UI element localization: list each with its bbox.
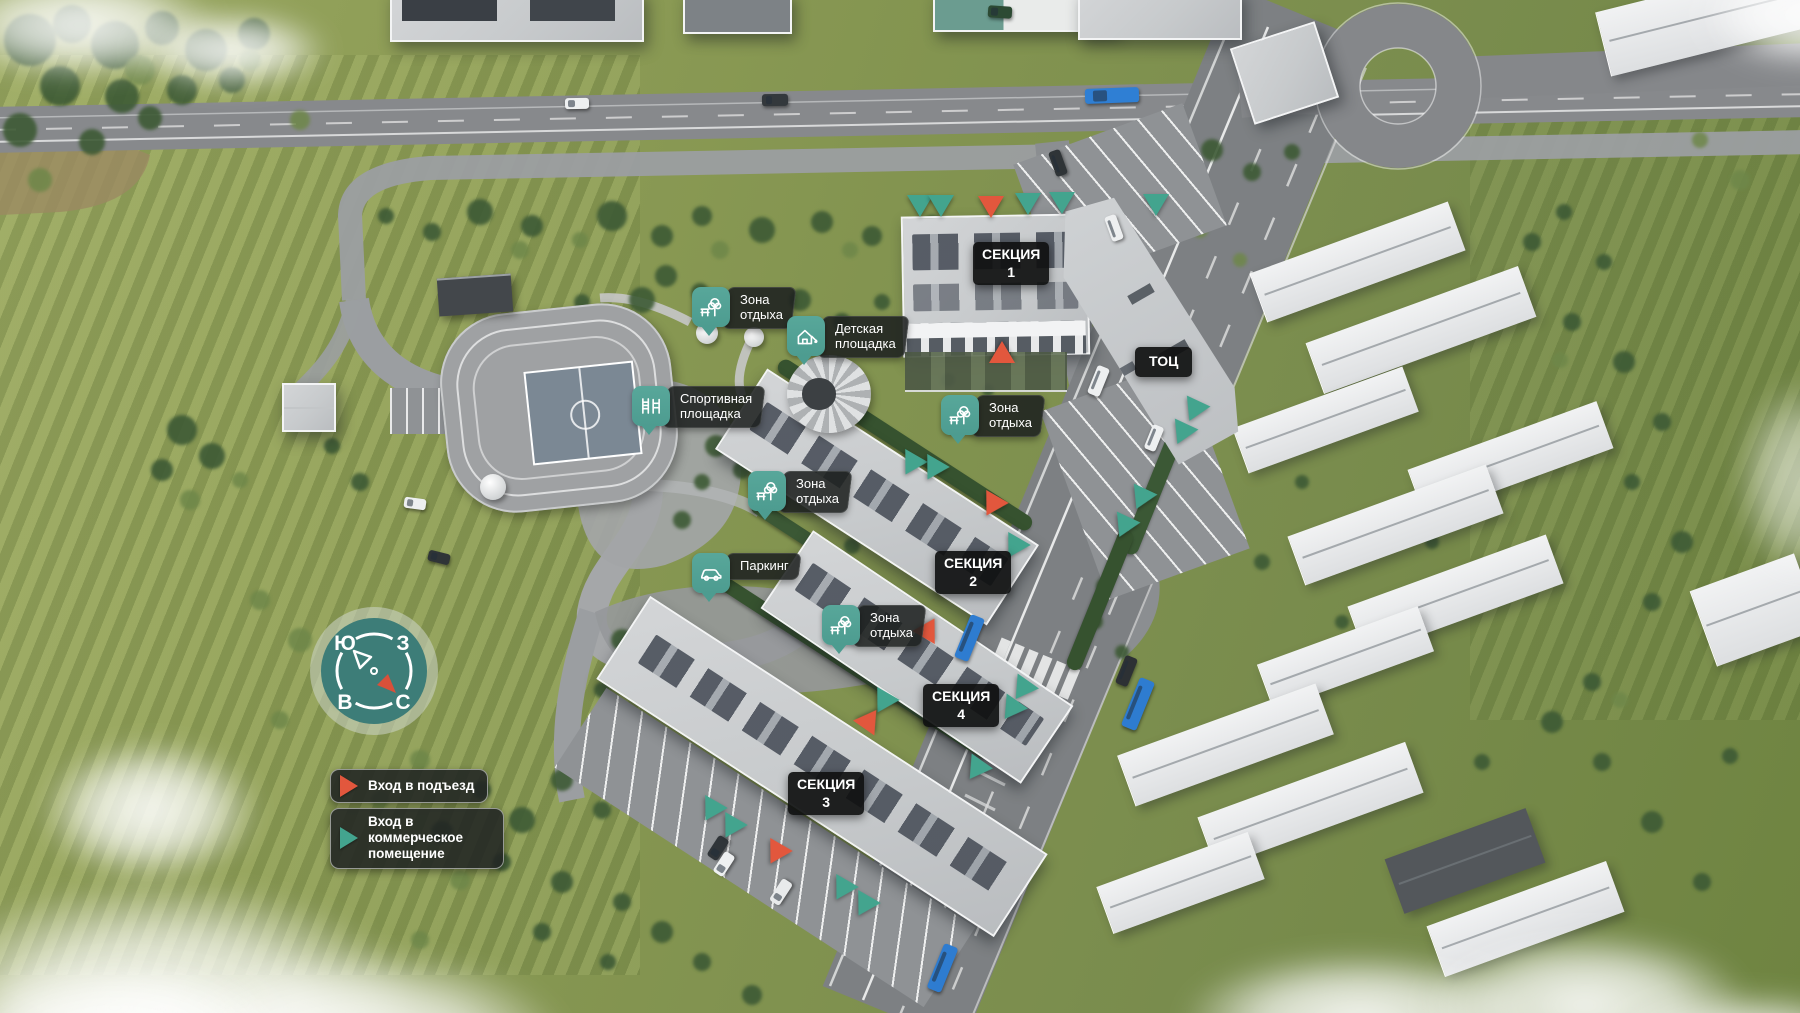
label-toc[interactable]: ТОЦ bbox=[1135, 347, 1192, 377]
entrance-triangle-icon bbox=[340, 775, 358, 797]
amenity-label-sports-ground[interactable]: Спортивнаяплощадка bbox=[632, 386, 763, 428]
amenity-label-rest-area-1[interactable]: Зонаотдыха bbox=[692, 287, 794, 329]
bus bbox=[1085, 87, 1139, 104]
label-section-3[interactable]: СЕКЦИЯ3 bbox=[788, 772, 864, 815]
entrance-marker[interactable] bbox=[989, 341, 1015, 363]
compass-rose: Ю З В С bbox=[308, 605, 440, 737]
car bbox=[988, 5, 1013, 19]
sports-ground-icon bbox=[632, 386, 670, 426]
compass-north-label: С bbox=[395, 691, 410, 714]
amenity-label-text: Зонаотдыха bbox=[855, 605, 924, 647]
commercial-entrance-marker[interactable] bbox=[1015, 193, 1041, 215]
compass-south-label: Ю bbox=[334, 632, 356, 655]
parking-icon bbox=[692, 553, 730, 593]
terrace-gardens bbox=[905, 352, 1067, 392]
car bbox=[762, 94, 788, 106]
dome-pavilion bbox=[480, 474, 506, 500]
rest-area-icon bbox=[748, 471, 786, 511]
building-offsite bbox=[390, 0, 644, 42]
commercial-entrance-marker[interactable] bbox=[928, 195, 954, 217]
compass-west-label: З bbox=[396, 632, 409, 655]
amenity-label-parking[interactable]: Паркинг bbox=[692, 553, 800, 593]
compass-east-label: В bbox=[337, 691, 352, 714]
commercial-triangle-icon bbox=[340, 827, 358, 849]
amenity-label-text: Зонаотдыха bbox=[725, 287, 794, 329]
basketball-court bbox=[523, 361, 642, 466]
legend-entrance: Вход в подъезд bbox=[330, 769, 488, 803]
rest-area-icon bbox=[692, 287, 730, 327]
small-house bbox=[282, 383, 336, 432]
amenity-label-text: Детскаяплощадка bbox=[820, 316, 907, 358]
rest-area-icon bbox=[822, 605, 860, 645]
amenity-label-playground[interactable]: Детскаяплощадка bbox=[787, 316, 907, 358]
amenity-label-rest-area-3[interactable]: Зонаотдыха bbox=[748, 471, 850, 513]
building-offsite bbox=[1078, 0, 1242, 40]
dome-pavilion bbox=[744, 327, 764, 347]
amenity-label-text: Спортивнаяплощадка bbox=[665, 386, 763, 428]
amenity-label-text: Зонаотдыха bbox=[974, 395, 1043, 437]
commercial-entrance-marker[interactable] bbox=[1143, 194, 1169, 216]
shed-building bbox=[437, 273, 513, 316]
amenity-label-rest-area-4[interactable]: Зонаотдыха bbox=[822, 605, 924, 647]
label-section-1[interactable]: СЕКЦИЯ1 bbox=[973, 242, 1049, 285]
rest-area-icon bbox=[941, 395, 979, 435]
round-plaza bbox=[787, 355, 871, 433]
legend-commercial-label: Вход в коммерческое помещение bbox=[368, 814, 490, 863]
legend-entrance-label: Вход в подъезд bbox=[368, 778, 474, 794]
amenity-label-text: Зонаотдыха bbox=[781, 471, 850, 513]
amenity-label-rest-area-2[interactable]: Зонаотдыха bbox=[941, 395, 1043, 437]
label-section-4[interactable]: СЕКЦИЯ4 bbox=[923, 684, 999, 727]
label-section-2[interactable]: СЕКЦИЯ2 bbox=[935, 551, 1011, 594]
entrance-marker[interactable] bbox=[978, 196, 1004, 218]
building-section-1[interactable] bbox=[901, 213, 1090, 357]
amenity-label-text: Паркинг bbox=[725, 553, 800, 580]
playground-icon bbox=[787, 316, 825, 356]
legend-commercial: Вход в коммерческое помещение bbox=[330, 808, 504, 869]
masterplan-canvas: Зонаотдыха Детскаяплощадка Спортивнаяпло… bbox=[0, 0, 1800, 1013]
commercial-entrance-marker[interactable] bbox=[1049, 192, 1075, 214]
car bbox=[565, 98, 589, 109]
building-offsite bbox=[683, 0, 792, 34]
